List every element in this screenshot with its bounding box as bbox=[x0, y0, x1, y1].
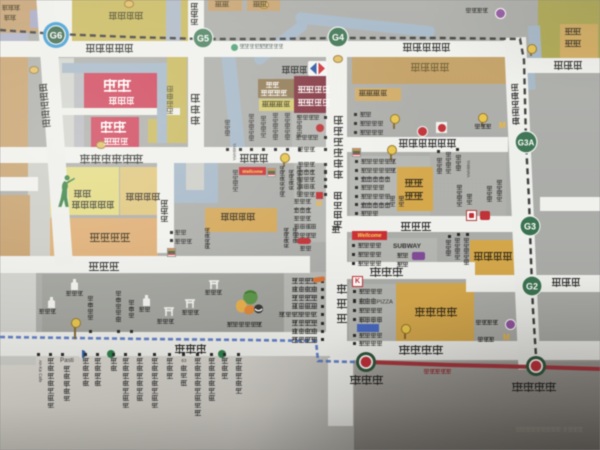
svg-text:G3A: G3A bbox=[518, 139, 535, 148]
svg-text:G3: G3 bbox=[524, 222, 536, 232]
svg-text:G6: G6 bbox=[50, 31, 63, 42]
svg-text:G4: G4 bbox=[332, 33, 344, 43]
svg-text:G2: G2 bbox=[526, 282, 538, 292]
svg-text:G5: G5 bbox=[197, 34, 209, 44]
